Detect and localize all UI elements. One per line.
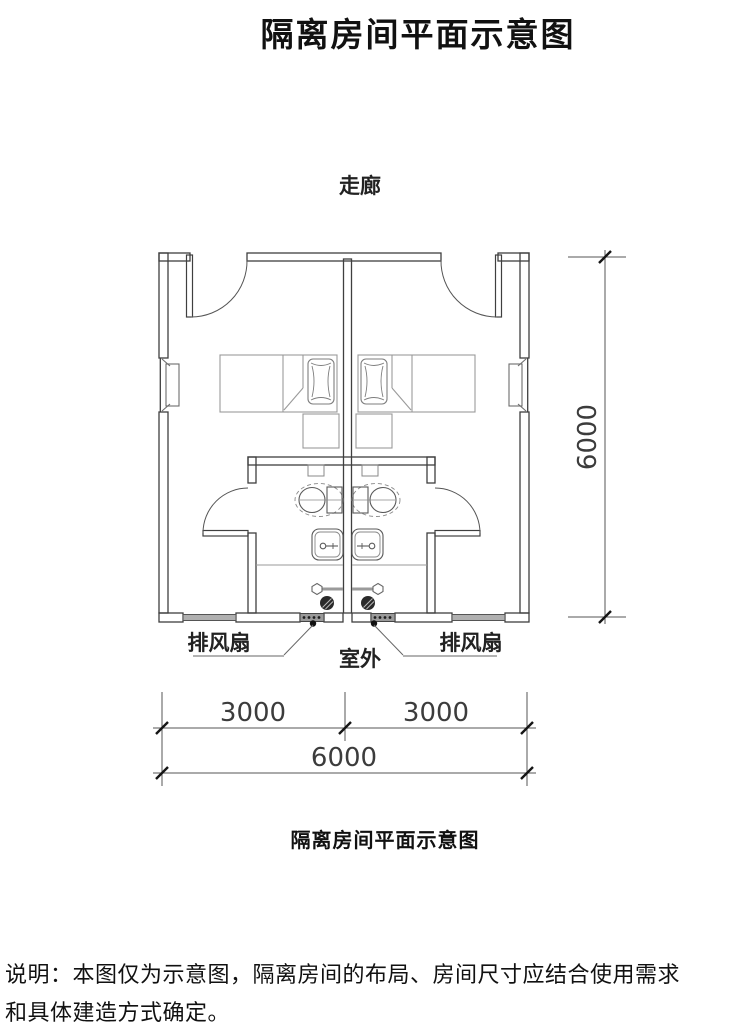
bottom-window-right: [452, 615, 505, 621]
bathroom-door-right-icon: [435, 488, 480, 536]
exhaust-fan-label-left: 排风扇: [188, 627, 251, 657]
toilet-right-icon: [352, 484, 400, 517]
sink-left-icon: [312, 529, 343, 560]
bottom-windows: [183, 615, 505, 621]
center-wall: [344, 259, 352, 613]
exhaust-vent-right-icon: [371, 614, 395, 622]
door-right-icon: [441, 255, 502, 317]
page: 隔离房间平面示意图 走廊: [0, 0, 750, 1036]
leader-dot-left: [310, 620, 316, 626]
dimension-total-width: 6000: [311, 743, 377, 773]
door-left-icon: [187, 255, 248, 317]
pillow-left-icon: [308, 359, 334, 404]
dimension-room-width-left: 3000: [220, 698, 286, 728]
bed-left: [220, 355, 337, 412]
showers: [312, 584, 383, 611]
bed-right: [358, 355, 475, 412]
dimension-room-width-right: 3000: [403, 698, 469, 728]
note-text: 说明：本图仅为示意图，隔离房间的布局、房间尺寸应结合使用需求和具体建造方式确定。: [5, 956, 700, 1032]
bedside-table-left: [303, 414, 339, 448]
bedside-table-right: [356, 414, 392, 448]
toilets: [295, 484, 400, 517]
sink-right-icon: [352, 529, 383, 560]
bottom-window-left: [183, 615, 236, 621]
dimension-total-height: 6000: [573, 404, 603, 470]
outdoor-label: 室外: [339, 643, 381, 673]
figure-caption: 隔离房间平面示意图: [291, 824, 480, 853]
toilet-left-icon: [295, 484, 343, 517]
bathroom-door-left-icon: [203, 488, 248, 536]
window-right-icon: [509, 359, 526, 411]
window-left-icon: [162, 359, 179, 411]
pillow-right-icon: [361, 359, 387, 404]
shower-left-icon: [312, 584, 343, 611]
shower-right-icon: [352, 584, 383, 611]
floor-plan-drawing: [0, 0, 750, 1036]
exhaust-vent-left-icon: [300, 614, 324, 622]
beds: [220, 355, 475, 448]
outer-walls: [159, 253, 529, 622]
leader-dot-right: [371, 620, 377, 626]
sinks: [312, 529, 383, 560]
exhaust-fan-label-right: 排风扇: [440, 627, 503, 657]
exhaust-vents: [300, 614, 395, 622]
